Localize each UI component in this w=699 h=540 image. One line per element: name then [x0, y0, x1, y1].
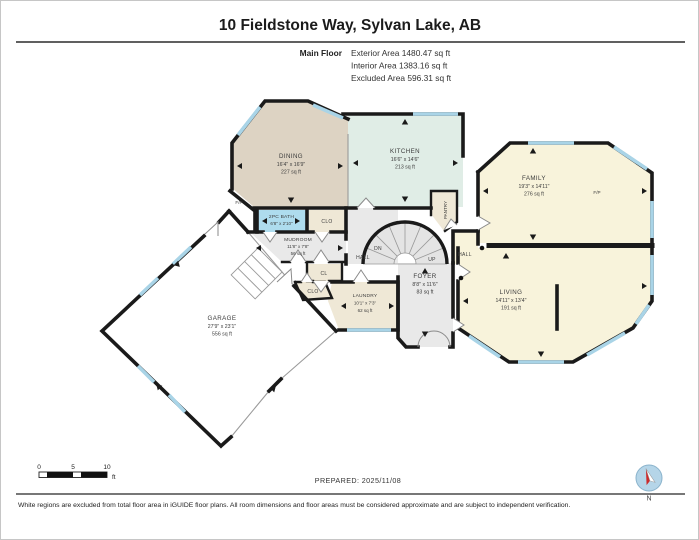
scale-tick-10: 10	[103, 464, 111, 471]
kitchen-area: 213 sq ft	[395, 165, 415, 171]
excluded-area-stat: Excluded Area 596.31 sq ft	[351, 73, 452, 83]
dining-label: DINING	[279, 153, 303, 160]
kitchen-label: KITCHEN	[390, 148, 420, 155]
living-room-shape	[458, 248, 652, 362]
fireplace-family-label: F/P	[593, 190, 600, 195]
hall-left-label: HALL	[356, 255, 370, 261]
closet-mid-label: CL	[321, 271, 328, 277]
closet-top-label: CLO	[321, 219, 332, 225]
compass-icon: N	[636, 465, 662, 503]
family-room-shape	[478, 143, 652, 243]
scale-unit: ft	[112, 474, 116, 481]
garage-dims: 27'9" x 23'1"	[208, 324, 237, 330]
mudroom-label: MUDROOM	[284, 237, 312, 243]
living-area: 191 sq ft	[501, 306, 521, 312]
fireplace-dining-label: F/P	[235, 200, 242, 205]
garage-area: 556 sq ft	[212, 332, 232, 338]
prepared-date: PREPARED: 2025/11/08	[315, 476, 401, 485]
pantry-label: PANTRY	[443, 201, 448, 219]
compass-north-label: N	[646, 496, 651, 503]
dining-dims: 16'4" x 16'9"	[277, 162, 306, 168]
foyer-dims: 8'8" x 11'6"	[412, 282, 437, 288]
scale-tick-0: 0	[37, 464, 41, 471]
foyer-label: FOYER	[413, 273, 436, 280]
disclaimer-text: White regions are excluded from total fl…	[18, 502, 570, 509]
scale-tick-5: 5	[71, 464, 75, 471]
laundry-area: 62 sq ft	[358, 308, 374, 313]
room-fills	[102, 101, 652, 446]
closet-bottom-label: CLO	[307, 289, 318, 295]
family-dims: 19'3" x 14'11"	[519, 184, 550, 190]
kitchen-dims: 16'6" x 14'6"	[391, 157, 420, 163]
floor-plan-page: 10 Fieldstone Way, Sylvan Lake, AB Main …	[0, 0, 699, 540]
family-area: 276 sq ft	[524, 192, 544, 198]
foyer-area: 83 sq ft	[416, 290, 434, 296]
stairs-down-label: DN	[374, 246, 382, 252]
floor-label: Main Floor	[300, 48, 343, 58]
stairs-up-label: UP	[428, 257, 436, 263]
bath-dims: 6'8" x 2'10"	[270, 221, 293, 226]
living-label: LIVING	[500, 289, 523, 296]
dining-area: 227 sq ft	[281, 170, 301, 176]
floor-plan-svg: 10 Fieldstone Way, Sylvan Lake, AB Main …	[1, 1, 699, 540]
scale-bar: 0 5 10 ft	[37, 464, 116, 481]
garage-label: GARAGE	[208, 315, 237, 322]
exterior-area-stat: Exterior Area 1480.47 sq ft	[351, 48, 451, 58]
interior-area-stat: Interior Area 1383.16 sq ft	[351, 61, 448, 71]
family-label: FAMILY	[522, 175, 546, 182]
mudroom-dims: 11'8" x 7'8"	[287, 244, 309, 249]
mudroom-area: 56 sq ft	[291, 251, 307, 256]
bath-label: 2PC BATH	[269, 214, 294, 220]
page-title: 10 Fieldstone Way, Sylvan Lake, AB	[219, 17, 481, 34]
hall-right-label: HALL	[458, 252, 472, 258]
living-dims: 14'11" x 13'4"	[496, 298, 527, 304]
laundry-shape	[328, 282, 398, 330]
laundry-dims: 10'1" x 7'3"	[354, 301, 377, 306]
laundry-label: LAUNDRY	[353, 293, 378, 299]
